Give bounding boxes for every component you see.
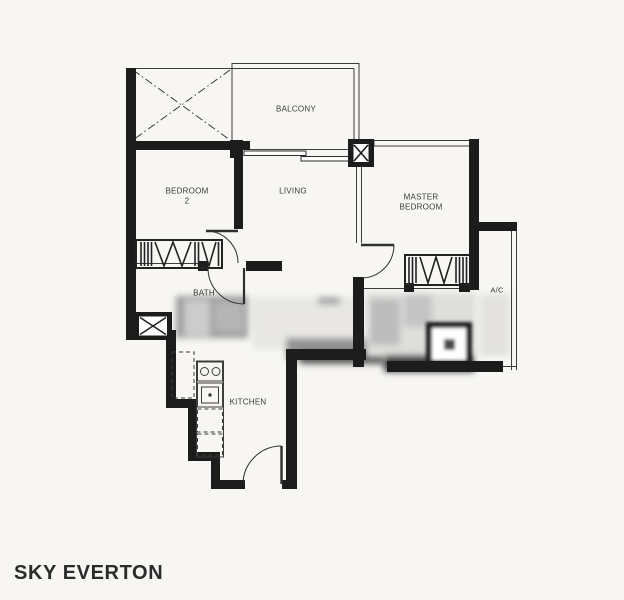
stove-hob-icon [198,362,223,381]
door-entry [243,446,282,484]
master-window [374,141,469,147]
walls [126,68,517,489]
room-label-balcony: BALCONY [276,104,316,114]
room-label-master-line2: BEDROOM [399,202,442,212]
room-label-living: LIVING [279,186,307,196]
room-label-master-line1: MASTER [399,193,442,203]
room-label-bedroom2-line1: BEDROOM [165,187,208,197]
floorplan-drawing [0,0,624,600]
room-label-bath: BATH [193,288,215,298]
mullion-column-icon [348,139,374,167]
project-title: SKY EVERTON [14,562,163,585]
master-partition [357,166,362,243]
ledge-cross-icon [131,69,232,142]
bath-front-ledge [136,264,200,268]
room-label-master-bedroom: MASTER BEDROOM [399,193,442,212]
sink-icon [198,383,223,407]
room-label-ac: A/C [490,285,503,295]
sliding-door-icon [244,151,359,161]
shower-icon [429,325,469,363]
room-label-bedroom2: BEDROOM 2 [165,187,208,206]
door-master [361,245,394,278]
room-label-kitchen: KITCHEN [230,397,267,407]
room-label-bedroom2-line2: 2 [165,196,208,206]
floorplan-scan: BALCONY BEDROOM 2 LIVING MASTER BEDROOM … [0,0,624,600]
wardrobe-master-icon [405,255,470,285]
duct-shaft-icon [134,312,172,340]
